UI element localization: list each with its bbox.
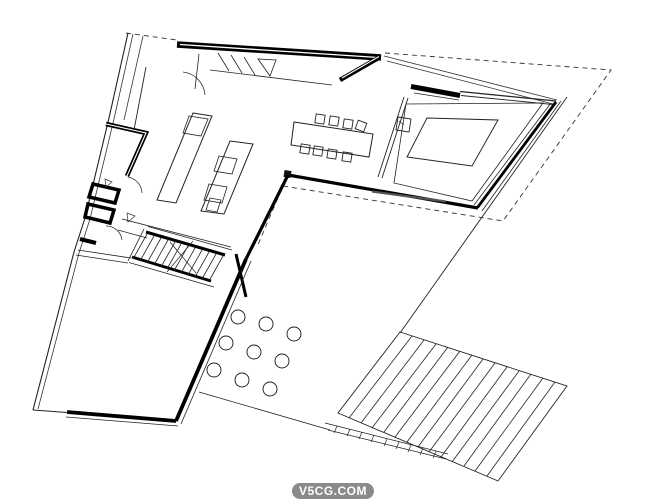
dining-chair-5 — [300, 144, 310, 154]
floor-plan-canvas: V5CG.COM — [0, 0, 669, 501]
north-wall-wedge — [340, 57, 380, 80]
west-boundary-outer — [33, 33, 128, 410]
stepping-stone-7 — [207, 363, 221, 377]
east-north-wall — [411, 87, 460, 96]
kitchen-island-1-sink — [183, 116, 208, 136]
entry-garage-lines — [76, 250, 131, 263]
west-boundary-third — [124, 36, 143, 120]
kitchen-island-2-sink — [204, 184, 227, 203]
watermark-text: V5CG.COM — [299, 484, 367, 498]
watermark-badge: V5CG.COM — [292, 483, 374, 499]
dining-chair-3 — [343, 119, 353, 129]
eave-line-2 — [387, 61, 553, 104]
stepping-stone-5 — [247, 345, 261, 359]
site-edge-line — [400, 97, 567, 333]
closet-edge — [195, 54, 199, 89]
deck-outline — [338, 332, 567, 481]
dining-chair-7 — [327, 149, 337, 159]
door-arc-1 — [128, 177, 142, 193]
roof-dash-top-left — [126, 33, 177, 40]
closet-triangle — [258, 59, 276, 76]
west-inner-wall — [134, 67, 146, 130]
garage-corner-line — [33, 410, 67, 413]
garage-east-wall — [176, 259, 246, 421]
kitchen-island-2-hob — [214, 156, 237, 174]
sunken-pit — [407, 118, 498, 166]
walkway-line-1 — [325, 423, 448, 454]
north-wall-cavity — [180, 45, 378, 58]
deck-stripes — [349, 336, 555, 476]
entry-door-arc — [183, 72, 205, 95]
wc-walls — [89, 184, 119, 203]
hall-line-1 — [122, 219, 231, 247]
dining-chair-1 — [315, 114, 325, 124]
stepping-stone-4 — [219, 336, 233, 350]
dining-chair-6 — [313, 146, 323, 156]
southeast-wall — [246, 175, 288, 259]
stepping-stone-3 — [287, 327, 301, 341]
terrace-connector — [199, 392, 330, 430]
west-boundary-inner — [38, 34, 133, 409]
stepping-stone-1 — [231, 310, 245, 324]
walkway-line-2 — [328, 430, 446, 459]
stepping-stone-2 — [259, 317, 273, 331]
east-wall — [478, 102, 557, 208]
east-wall-inner — [474, 103, 551, 205]
sliding-door-leaf — [372, 192, 446, 202]
garage-south-wall — [67, 412, 176, 421]
east-left-wall — [378, 97, 408, 178]
stepping-stone-8 — [235, 373, 249, 387]
kitchen-island-1 — [157, 113, 212, 203]
garage-east-outer — [181, 261, 251, 424]
dining-table — [291, 122, 373, 157]
south-wall — [288, 175, 478, 208]
kitchen-island-2 — [201, 141, 253, 214]
floor-plan-svg — [0, 0, 669, 501]
stepping-stone-6 — [275, 354, 289, 368]
dining-chair-2 — [329, 116, 339, 126]
door-arc-2 — [106, 226, 122, 240]
stepping-stone-9 — [263, 382, 277, 396]
east-inner-outline — [394, 103, 543, 201]
dining-chair-4 — [355, 120, 367, 132]
eave-line-1 — [384, 56, 557, 100]
kitchen-island-2-box — [206, 198, 221, 212]
north-wall-wedge-cavity — [342, 57, 379, 79]
